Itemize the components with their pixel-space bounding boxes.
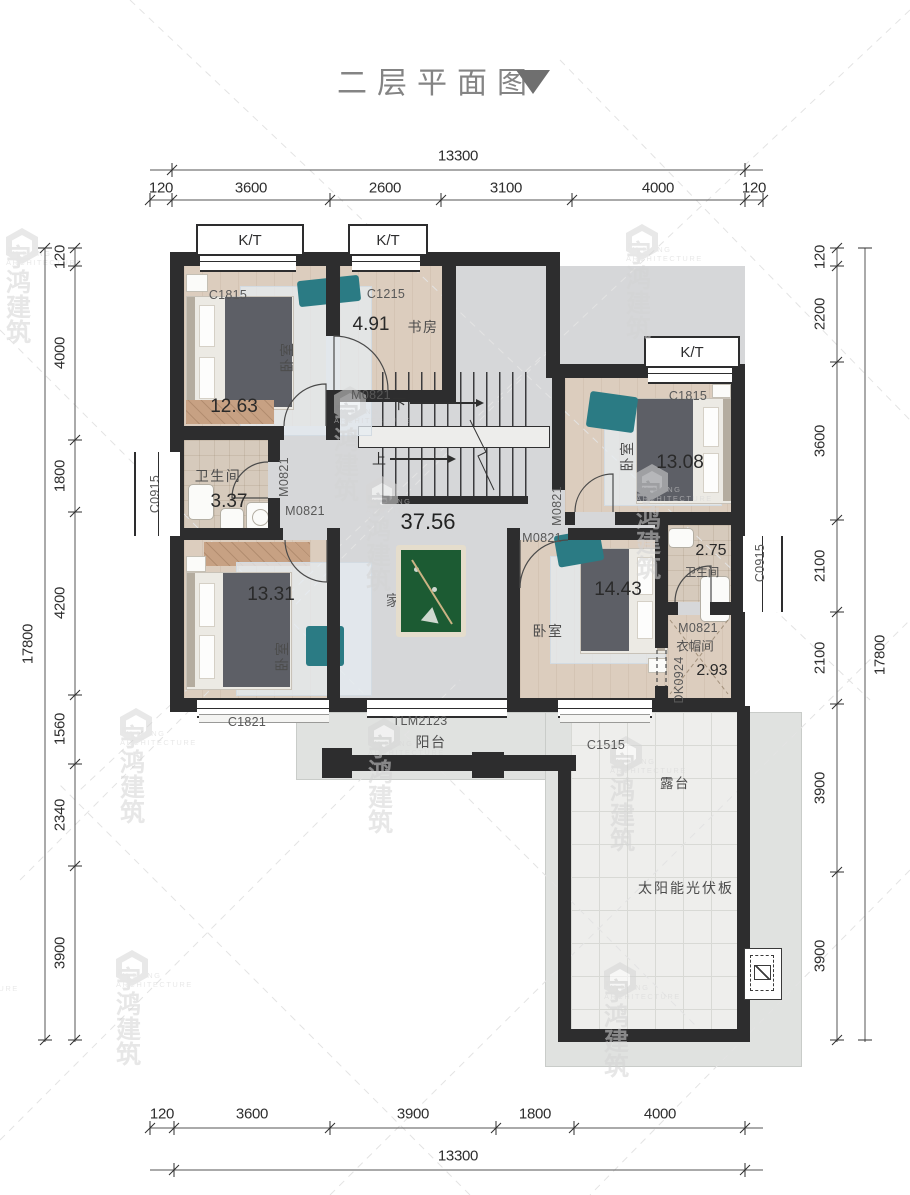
dim-left-seg: 1560 <box>52 713 69 745</box>
ac-platform: K/T <box>196 224 304 256</box>
room-area: 2.93 <box>696 662 727 680</box>
dim-right-total: 17800 <box>872 635 889 675</box>
dim-left-total: 17800 <box>20 624 37 664</box>
label-c1215: C1215 <box>367 287 405 301</box>
bed-pillow <box>199 635 215 679</box>
wall <box>184 426 284 440</box>
wall <box>184 528 283 540</box>
dim-right-seg: 120 <box>812 245 829 269</box>
dim-left-seg: 3900 <box>52 937 69 969</box>
terrace-parapet <box>558 1029 750 1042</box>
label-tlm2123: TLM2123 <box>393 714 448 728</box>
pool-rack <box>421 606 441 624</box>
bed-headboard <box>187 573 195 687</box>
wall <box>710 602 731 615</box>
wall <box>615 512 731 525</box>
stair-up-label: 上 <box>372 449 386 469</box>
equipment-unit <box>754 965 771 980</box>
room-name: 卫生间 <box>685 564 720 580</box>
dim-bottom-seg: 4000 <box>644 1106 676 1123</box>
wall <box>552 378 565 490</box>
room-name: 太阳能光伏板 <box>638 878 734 898</box>
bed-pillow <box>703 407 719 447</box>
room-name: 卧室 <box>617 441 637 472</box>
dim-right-seg: 3900 <box>812 772 829 804</box>
label-m0821: M0821 <box>522 531 562 545</box>
dim-top-seg: 120 <box>742 180 766 197</box>
ac-platform-label: K/T <box>376 232 399 249</box>
bed-pillow <box>199 583 215 627</box>
dim-bottom-seg: 120 <box>150 1106 174 1123</box>
label-c0915: C0915 <box>753 544 767 582</box>
dim-bottom-total: 13300 <box>438 1148 478 1165</box>
pool-ball <box>432 587 437 592</box>
vanity-sink <box>700 576 730 622</box>
wall <box>546 252 560 378</box>
watermark-en: YU HONG ARCHITECTURE <box>626 245 703 263</box>
watermark-en: YU HONG ARCHITECTURE <box>116 971 193 989</box>
nightstand <box>712 384 731 398</box>
bed-pillow <box>199 357 215 399</box>
window-sill <box>560 714 650 723</box>
ac-platform-label: K/T <box>238 232 261 249</box>
label-c1821: C1821 <box>228 715 266 729</box>
room-name: 卧室 <box>277 342 297 373</box>
stair-landing <box>358 426 550 448</box>
watermark-en: YU HONG ARCHITECTURE <box>6 249 83 267</box>
stair-up-arrow-line <box>390 458 448 460</box>
page-title: 二层平面图 <box>337 58 537 102</box>
room-name: 卧室 <box>272 641 292 672</box>
wall <box>442 266 456 390</box>
balcony-column <box>472 752 504 778</box>
label-m0821: M0821 <box>550 486 564 526</box>
label-m0821: M0821 <box>351 388 391 402</box>
stair-up-arrow-icon <box>448 455 456 463</box>
dim-left-seg: 4200 <box>52 587 69 619</box>
ac-platform: K/T <box>348 224 428 256</box>
dim-right-seg: 3900 <box>812 940 829 972</box>
watermark-en: YU HONG ARCHITECTURE <box>0 975 19 993</box>
dim-top-seg: 4000 <box>642 180 674 197</box>
wall <box>655 615 668 648</box>
dim-right-seg: 2100 <box>812 550 829 582</box>
pool-table <box>396 545 466 637</box>
toilet <box>668 528 694 548</box>
room-name: 露台 <box>660 772 690 792</box>
label-m0821: M0821 <box>678 621 718 635</box>
room-name: 卫生间 <box>195 466 242 486</box>
dim-left-seg: 120 <box>52 245 69 269</box>
dim-right-seg: 2100 <box>812 642 829 674</box>
watermark-en: YU HONG ARCHITECTURE <box>604 983 681 1001</box>
dim-right-seg: 2200 <box>812 298 829 330</box>
dim-top-total: 13300 <box>438 148 478 165</box>
wall <box>327 540 340 698</box>
floor-plan-page: K/T K/T K/T 宇鸿建筑YU HONG ARCHITECTURE 宇鸿建… <box>0 0 910 1195</box>
washer-door <box>252 509 269 526</box>
wall <box>655 602 678 615</box>
stair-down-arrow-line <box>410 402 476 404</box>
stair-down-label: 下 <box>392 394 406 414</box>
wall <box>565 512 575 525</box>
dim-top-seg: 2600 <box>369 180 401 197</box>
terrace-parapet <box>558 770 571 1042</box>
pool-ball <box>414 567 419 572</box>
room-area: 3.37 <box>211 491 248 513</box>
nightstand <box>186 556 206 572</box>
wall <box>507 528 520 540</box>
wall <box>326 266 340 336</box>
label-c1815: C1815 <box>209 288 247 302</box>
dim-left-seg: 4000 <box>52 337 69 369</box>
label-c1515: C1515 <box>587 738 625 752</box>
room-area: 4.91 <box>353 314 390 336</box>
room-area: 2.75 <box>695 542 726 560</box>
bed-headboard <box>723 399 731 501</box>
label-c1815: C1815 <box>669 389 707 403</box>
nightstand <box>186 274 208 292</box>
ac-platform-label: K/T <box>680 344 703 361</box>
wall <box>655 686 668 698</box>
ac-platform: K/T <box>644 336 740 368</box>
nightstand <box>648 658 667 673</box>
bed-pillow <box>199 305 215 347</box>
watermark-en: YU HONG ARCHITECTURE <box>636 485 713 503</box>
equipment-box <box>744 948 782 1000</box>
dim-left-seg: 1800 <box>52 460 69 492</box>
room-name: 阳台 <box>416 732 447 752</box>
label-m0821: M0821 <box>285 504 325 518</box>
wall <box>327 528 340 540</box>
room-area: 37.56 <box>400 509 455 535</box>
label-dk0924: DK0924 <box>672 657 686 704</box>
bed-headboard <box>187 297 195 407</box>
label-c0915: C0915 <box>148 475 162 513</box>
watermark-en: YU HONG ARCHITECTURE <box>120 729 197 747</box>
stair-down-arrow-icon <box>476 399 484 407</box>
balcony-railing <box>326 755 576 771</box>
dim-bottom-seg: 3900 <box>397 1106 429 1123</box>
room-area: 13.31 <box>247 584 295 606</box>
chair <box>586 391 639 433</box>
dim-right-seg: 3600 <box>812 425 829 457</box>
dim-left-seg: 2340 <box>52 799 69 831</box>
balcony-column <box>322 748 352 778</box>
title-triangle-icon <box>516 70 550 94</box>
room-area: 12.63 <box>210 396 258 418</box>
room-area: 13.08 <box>656 452 704 474</box>
label-m0821: M0821 <box>277 457 291 497</box>
dim-bottom-seg: 3600 <box>236 1106 268 1123</box>
room-area: 14.43 <box>594 579 642 601</box>
wall <box>507 540 520 698</box>
room-name: 书房 <box>408 317 439 337</box>
dim-top-seg: 120 <box>149 180 173 197</box>
bed-pillow <box>637 601 653 639</box>
room-name: 卧室 <box>533 621 564 641</box>
room-name: 衣帽间 <box>676 636 714 655</box>
dim-top-seg: 3100 <box>490 180 522 197</box>
dim-top-seg: 3600 <box>235 180 267 197</box>
dim-bottom-seg: 1800 <box>519 1106 551 1123</box>
